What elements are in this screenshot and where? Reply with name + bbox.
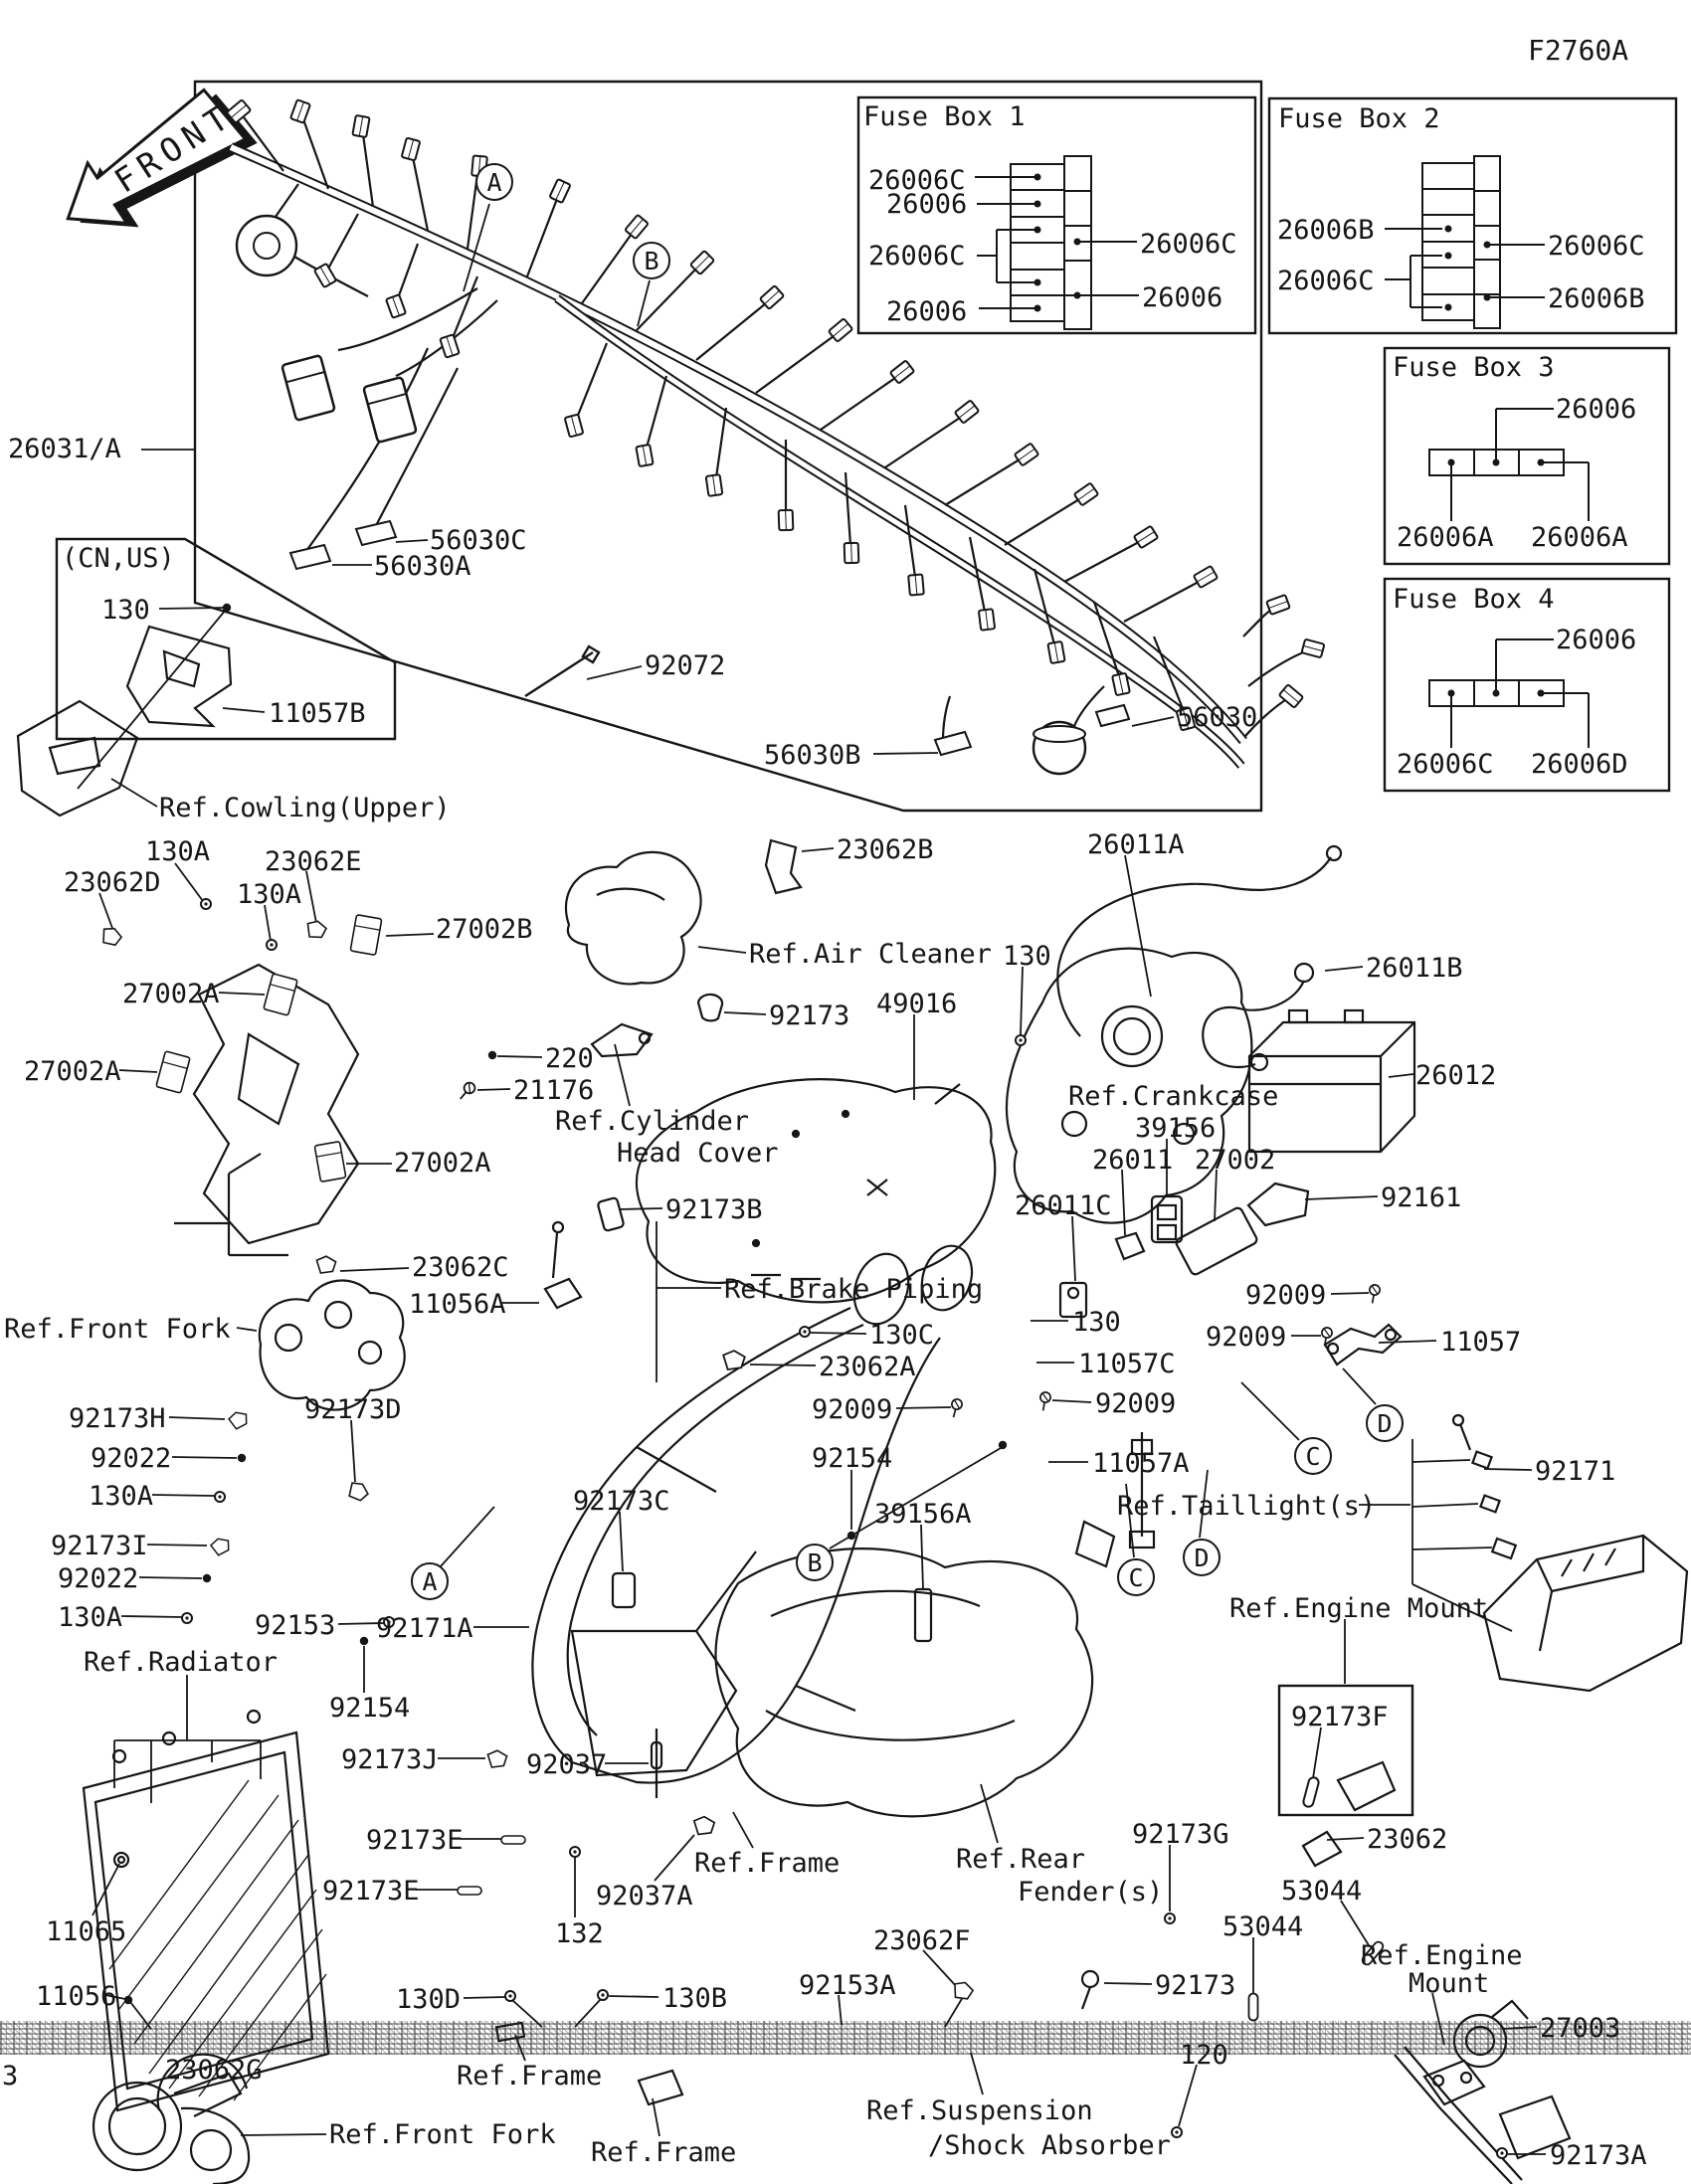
fuse-box-title: Fuse Box 2 [1278, 105, 1440, 133]
ref-label: Ref.Suspension [866, 2097, 1093, 2125]
part-label: 92022 [58, 1565, 138, 1593]
fuse-label: 26006 [1142, 284, 1222, 312]
part-label: 11056 [36, 1983, 116, 2011]
fuse-label: 26006D [1531, 751, 1628, 779]
fuse-label: 26006 [886, 298, 967, 326]
callout-marker: A [475, 163, 513, 201]
fuse-box-title: Fuse Box 1 [863, 103, 1026, 131]
ref-label: Ref.Engine [1361, 1942, 1523, 1970]
part-label: 220 [545, 1045, 594, 1073]
part-label: 27002A [24, 1058, 121, 1086]
ref-label: Ref.Front Fork [4, 1316, 231, 1344]
part-label: 49016 [876, 991, 957, 1018]
part-label: 92037 [526, 1751, 607, 1779]
part-label: 92173H [69, 1405, 166, 1433]
ref-label: Ref.Crankcase [1068, 1083, 1278, 1111]
part-label: 130A [58, 1604, 122, 1632]
ref-label: Head Cover [617, 1140, 779, 1168]
part-label: 26031/A [8, 436, 121, 463]
part-label: 92171 [1535, 1458, 1615, 1486]
part-label: 92037A [596, 1883, 693, 1911]
part-label: 11057A [1092, 1450, 1190, 1478]
part-label: 92173 [1155, 1972, 1235, 2000]
part-label: 92072 [645, 652, 725, 680]
part-label: 23062D [64, 869, 161, 897]
part-label: 26012 [1415, 1062, 1496, 1090]
part-label: 27002 [1195, 1147, 1275, 1175]
part-label: 92153A [799, 1972, 896, 2000]
part-label: 92173B [665, 1196, 763, 1224]
fuse-label: 26006C [1548, 233, 1645, 261]
ref-label: Ref.Radiator [84, 1649, 278, 1677]
part-label: 23062F [873, 1927, 971, 1955]
part-label: 27002A [122, 981, 220, 1008]
part-label: 130C [869, 1322, 934, 1350]
part-label: 23062C [412, 1254, 509, 1282]
part-label: 23062G [165, 2057, 263, 2085]
part-label: 23062E [265, 848, 362, 876]
part-label: 92154 [812, 1445, 892, 1473]
part-label: 92173E [366, 1827, 464, 1855]
part-label: 130 [1003, 943, 1051, 971]
part-label: 53044 [1281, 1878, 1362, 1906]
fuse-label: 26006C [1277, 268, 1375, 295]
part-label: 92173 [769, 1002, 849, 1030]
part-label: 130B [662, 1985, 727, 2013]
part-label: 92173C [573, 1488, 670, 1516]
part-label: 21176 [513, 1077, 594, 1105]
part-label: 92009 [812, 1396, 892, 1424]
callout-marker: D [1183, 1539, 1221, 1576]
part-label: 26011B [1366, 955, 1463, 983]
part-label: 92009 [1245, 1282, 1326, 1310]
fuse-label: 26006A [1397, 524, 1494, 552]
part-label: 56030A [374, 553, 471, 581]
scan-noise-band [0, 2021, 1691, 2055]
part-label: 92173E [322, 1878, 420, 1906]
part-label: 26011 [1092, 1147, 1173, 1175]
ref-label: Mount [1409, 1970, 1489, 1998]
ref-label: Ref.Brake Piping [724, 1276, 983, 1304]
callout-marker: B [633, 242, 670, 279]
ref-label: Ref.Engine Mount [1229, 1595, 1488, 1623]
part-label: 26011C [1015, 1192, 1112, 1220]
ref-label: Ref.Taillight(s) [1117, 1493, 1376, 1521]
part-label: 130D [396, 1986, 461, 2014]
part-label: 56030B [764, 742, 861, 770]
ref-label: Ref.Rear [956, 1846, 1085, 1874]
market-label: (CN,US) [62, 545, 175, 573]
fuse-label: 26006B [1548, 285, 1645, 313]
part-label: 130 [1072, 1309, 1121, 1337]
ref-label: Ref.Front Fork [329, 2121, 556, 2149]
part-label: 130A [237, 881, 301, 909]
part-label: 130A [145, 838, 210, 866]
part-label: 39156 [1135, 1115, 1216, 1143]
part-label: 130A [89, 1483, 153, 1511]
fuse-box-title: Fuse Box 4 [1393, 586, 1555, 614]
ref-label: /Shock Absorber [928, 2132, 1171, 2160]
part-label: 92173D [304, 1396, 402, 1424]
part-label: 92009 [1206, 1324, 1286, 1352]
fragment-label: 3 [2, 2063, 18, 2091]
part-label: 27002A [394, 1150, 491, 1178]
part-label: 26011A [1087, 831, 1185, 859]
fuse-label: 26006C [1140, 231, 1237, 259]
part-label: 11057 [1440, 1329, 1521, 1357]
ref-label: Ref.Air Cleaner [749, 941, 992, 969]
fuse-label: 26006A [1531, 524, 1628, 552]
part-label: 27002B [436, 916, 533, 944]
ref-label: Ref.Cylinder [555, 1108, 749, 1136]
part-label: 92173I [51, 1533, 148, 1560]
part-label: 92153 [255, 1612, 335, 1640]
fuse-label: 26006C [868, 243, 966, 271]
fuse-label: 26006 [1556, 396, 1636, 424]
part-label: 92173J [341, 1746, 439, 1774]
part-label: 92171A [376, 1615, 473, 1643]
ref-label: Ref.Frame [457, 2063, 602, 2091]
parts-diagram-canvas: FRONT [0, 0, 1691, 2184]
callout-marker: C [1117, 1558, 1155, 1596]
ref-label: Ref.Frame [591, 2139, 736, 2167]
fuse-label: 26006B [1277, 217, 1375, 245]
fuse-box-title: Fuse Box 3 [1393, 354, 1555, 382]
fuse-label: 26006 [1556, 627, 1636, 654]
part-label: 56030 [1177, 704, 1257, 732]
callout-marker: C [1294, 1437, 1332, 1475]
part-label: 92173G [1132, 1821, 1229, 1849]
wiring-harness-drawing [227, 99, 1325, 774]
diagram-line-art: FRONT [0, 0, 1691, 2184]
callout-marker: B [796, 1544, 834, 1581]
fuse-label: 26006C [1397, 751, 1494, 779]
part-label: 92154 [329, 1695, 410, 1723]
part-label: 132 [555, 1920, 604, 1948]
part-label: 11056A [409, 1291, 506, 1319]
part-label: 92009 [1095, 1390, 1176, 1418]
ref-label: Fender(s) [1018, 1879, 1163, 1907]
part-label: 23062 [1367, 1826, 1447, 1854]
part-label: 92173A [1550, 2142, 1647, 2170]
part-label: 23062A [819, 1354, 916, 1381]
part-label: 11065 [46, 1918, 126, 1946]
part-label: 39156A [874, 1501, 972, 1529]
callout-marker: A [411, 1562, 449, 1600]
part-label: 92173F [1291, 1704, 1389, 1731]
fuse-label: 26006 [886, 191, 967, 219]
ref-label: Ref.Cowling(Upper) [159, 795, 451, 822]
part-label: 92022 [91, 1445, 171, 1473]
front-arrow: FRONT [49, 80, 261, 257]
ref-label: Ref.Frame [694, 1850, 840, 1878]
page-code: F2760A [1528, 36, 1628, 65]
part-label: 11057B [269, 700, 366, 728]
part-label: 130 [101, 597, 150, 625]
callout-marker: D [1366, 1404, 1404, 1442]
part-label: 53044 [1222, 1913, 1303, 1941]
part-label: 23062B [837, 836, 934, 864]
part-label: 11057C [1078, 1351, 1176, 1378]
part-label: 92161 [1381, 1184, 1461, 1212]
